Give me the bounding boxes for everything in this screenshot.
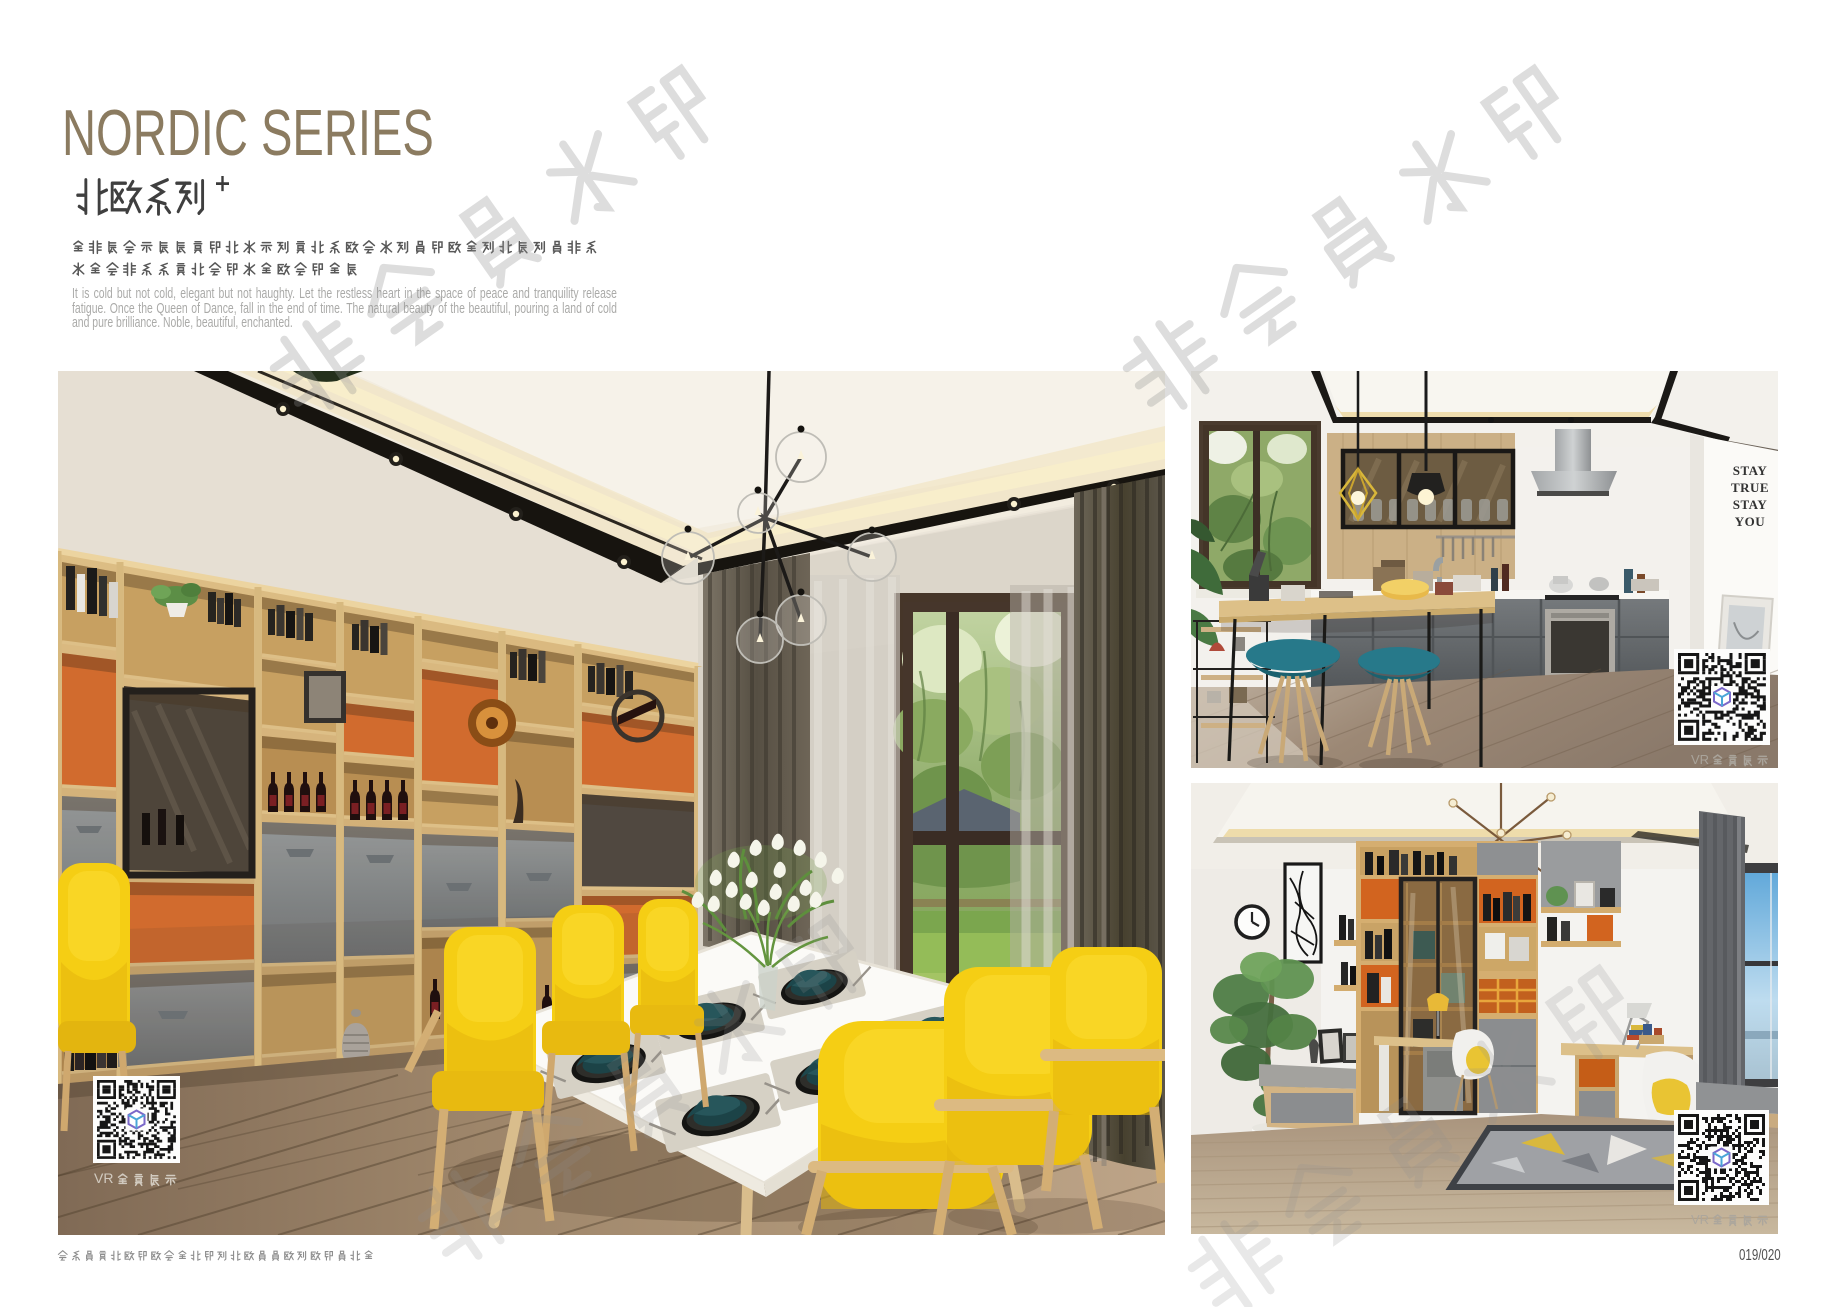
svg-text:YOU: YOU	[1735, 514, 1766, 529]
svg-text:TRUE: TRUE	[1731, 480, 1769, 495]
svg-text:STAY: STAY	[1733, 463, 1768, 478]
svg-text:VR: VR	[1691, 752, 1709, 767]
svg-text:VR: VR	[1691, 1212, 1709, 1227]
svg-text:STAY: STAY	[1733, 497, 1768, 512]
svg-text:VR: VR	[94, 1170, 113, 1186]
